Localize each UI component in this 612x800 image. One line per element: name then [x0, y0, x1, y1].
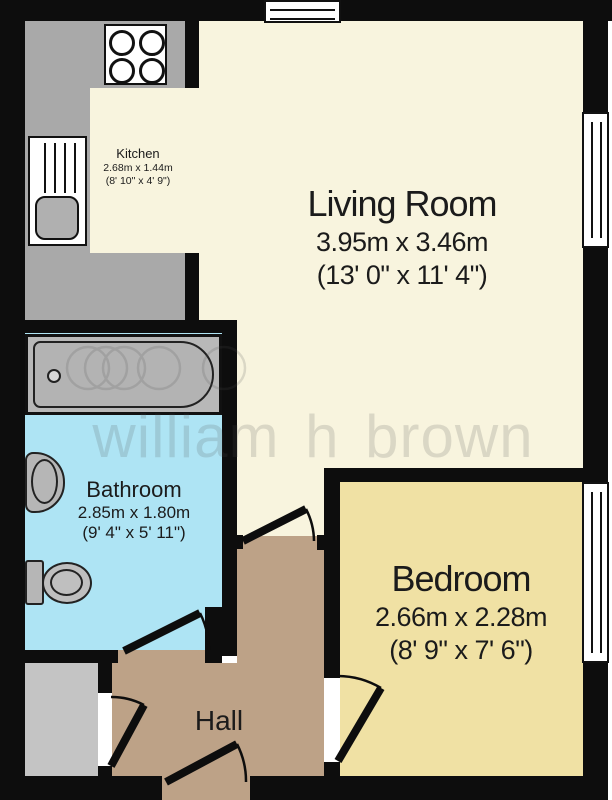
living-hall-door-leaf-icon — [243, 509, 306, 541]
kitchen-label: Kitchen 2.68m x 1.44m (8' 10" x 4' 9") — [103, 146, 172, 188]
hall-name: Hall — [195, 705, 243, 737]
doors-layer — [0, 0, 612, 800]
kitchen-name: Kitchen — [103, 146, 172, 162]
bedroom-door-arc-icon — [338, 676, 381, 688]
bedroom-name: Bedroom — [375, 557, 547, 601]
entrance-door-leaf-icon — [166, 744, 237, 782]
living-room-imperial-dimensions: (13' 0" x 11' 4") — [307, 259, 496, 292]
kitchen-imperial-dimensions: (8' 10" x 4' 9") — [103, 175, 172, 188]
bathroom-door-leaf-icon — [124, 613, 200, 651]
bedroom-metric-dimensions: 2.66m x 2.28m — [375, 601, 547, 634]
bedroom-label: Bedroom 2.66m x 2.28m (8' 9" x 7' 6") — [375, 557, 547, 667]
cupboard-door-leaf-icon — [111, 705, 144, 766]
bedroom-door-leaf-icon — [338, 688, 381, 761]
entrance-door-arc-icon — [237, 744, 246, 782]
bathroom-door-arc-icon — [200, 613, 209, 651]
living-room-metric-dimensions: 3.95m x 3.46m — [307, 226, 496, 259]
living-room-label: Living Room 3.95m x 3.46m (13' 0" x 11' … — [307, 182, 496, 292]
hall-label: Hall — [195, 705, 243, 737]
bathroom-label: Bathroom 2.85m x 1.80m (9' 4" x 5' 11") — [78, 477, 190, 543]
floor-plan: william h brown Kitchen 2.68m x 1.44m (8… — [0, 0, 612, 800]
bedroom-imperial-dimensions: (8' 9" x 7' 6") — [375, 634, 547, 667]
kitchen-metric-dimensions: 2.68m x 1.44m — [103, 162, 172, 175]
cupboard-door-arc-icon — [111, 697, 144, 705]
living-hall-door-arc-icon — [306, 509, 314, 541]
living-room-name: Living Room — [307, 182, 496, 226]
bathroom-metric-dimensions: 2.85m x 1.80m — [78, 503, 190, 523]
bathroom-imperial-dimensions: (9' 4" x 5' 11") — [78, 523, 190, 543]
bathroom-name: Bathroom — [78, 477, 190, 503]
